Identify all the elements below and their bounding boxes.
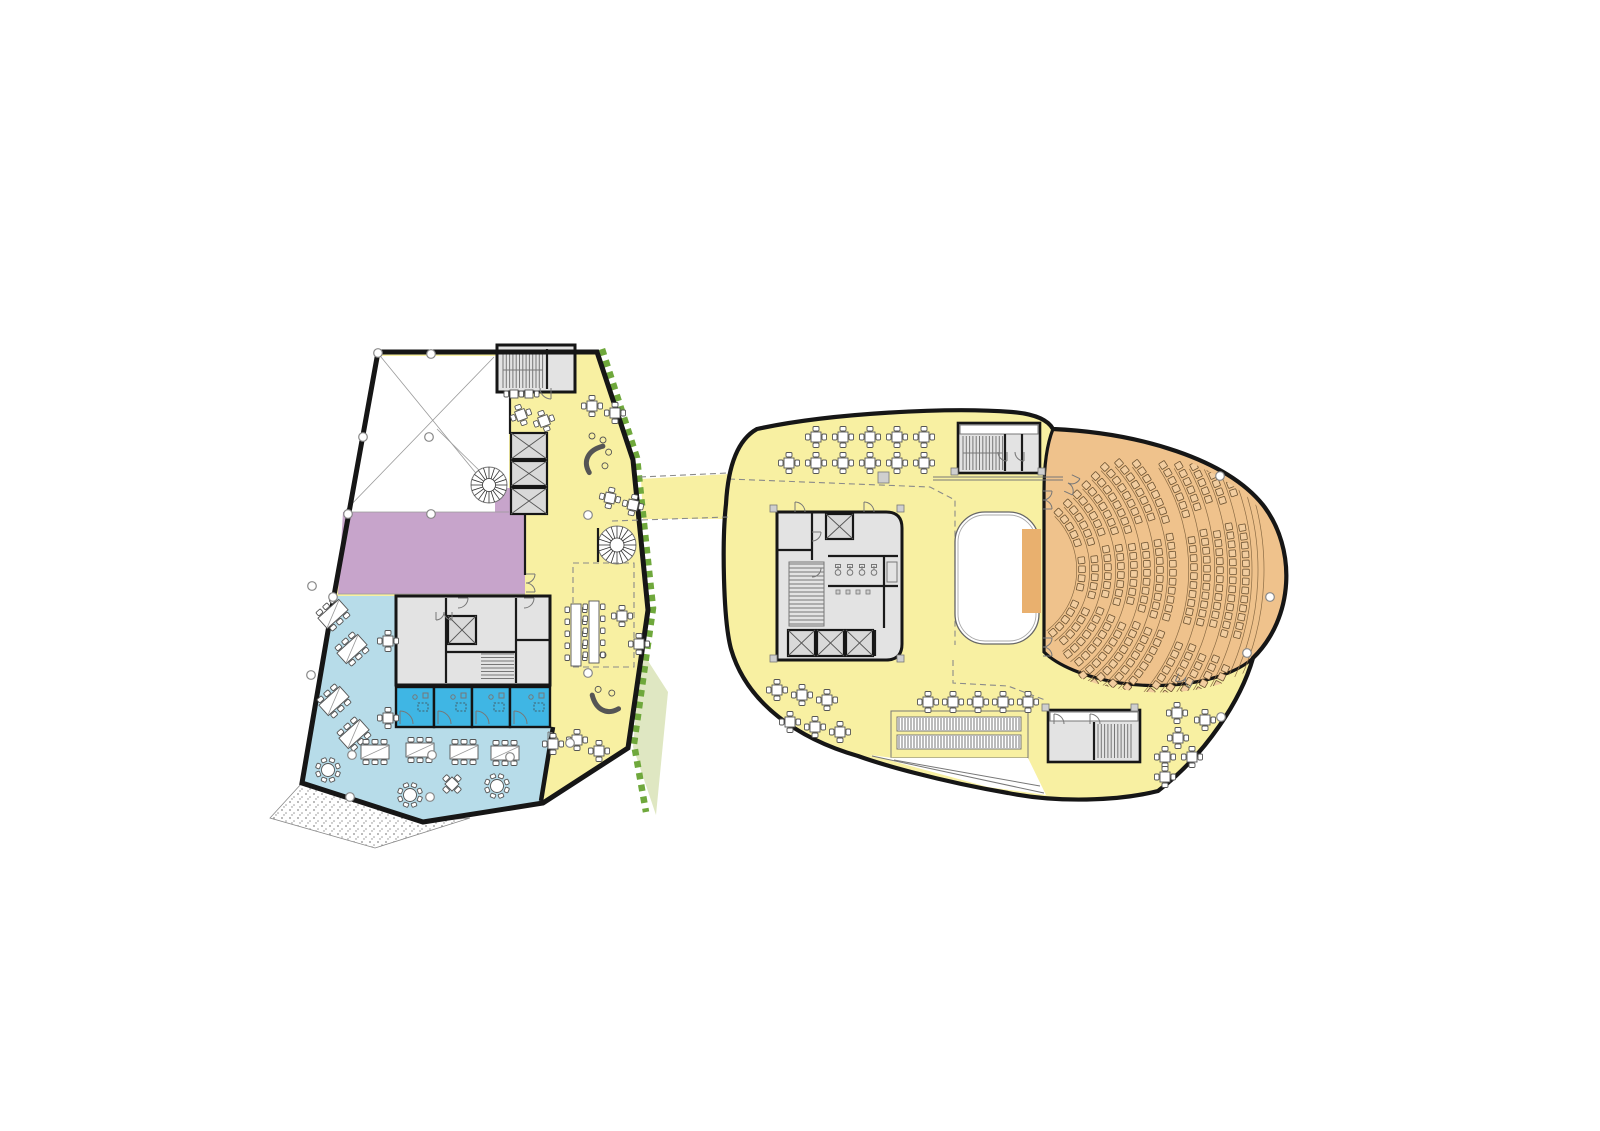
elevator-3	[511, 488, 547, 514]
right-building-auditorium	[724, 410, 1287, 799]
column-r4	[1217, 713, 1226, 722]
hall-purple	[338, 512, 525, 594]
core-main-elevator	[448, 616, 476, 644]
left-building	[302, 345, 650, 822]
column-r1	[1216, 472, 1225, 481]
booth-1	[396, 687, 434, 727]
bar-table-2	[519, 390, 539, 398]
column-12	[506, 753, 515, 762]
column-11	[428, 751, 437, 760]
threshold-w3	[770, 655, 777, 662]
column-17	[566, 739, 575, 748]
column-13	[346, 793, 355, 802]
column-9	[307, 671, 316, 680]
threshold-n2	[1038, 468, 1045, 475]
elevator-1	[511, 433, 547, 459]
column-15	[584, 511, 593, 520]
booth-3	[472, 687, 510, 727]
column-8	[308, 582, 317, 591]
sink-1	[836, 590, 840, 594]
post-square	[878, 472, 889, 483]
column-2	[427, 350, 436, 359]
escalator-treads-2	[899, 736, 1019, 748]
bridge-deck	[641, 474, 729, 519]
threshold-w1	[770, 505, 777, 512]
core-north-landing	[960, 425, 1038, 434]
floor-plan-drawing	[0, 0, 1600, 1131]
cw-elevator-1	[788, 630, 815, 656]
column-3	[359, 433, 368, 442]
floor-plan-page	[0, 0, 1600, 1131]
column-5	[344, 510, 353, 519]
column-7	[329, 593, 338, 602]
column-6	[427, 510, 436, 519]
threshold-s2	[1131, 704, 1138, 711]
column-r3	[1243, 649, 1252, 658]
cw-elevator-2	[817, 630, 844, 656]
work-table-8	[491, 741, 519, 766]
column-r2	[1266, 593, 1275, 602]
column-4	[425, 433, 434, 442]
elevator-2	[511, 461, 547, 486]
threshold-n1	[951, 468, 958, 475]
sink-2	[846, 590, 850, 594]
stage	[1022, 529, 1041, 613]
column-1	[374, 349, 383, 358]
escalator-treads-1	[899, 718, 1019, 730]
sink-3	[856, 590, 860, 594]
sink-4	[866, 590, 870, 594]
column-14	[426, 793, 435, 802]
column-16	[584, 669, 593, 678]
booth-2	[434, 687, 472, 727]
booth-4	[510, 687, 550, 727]
work-table-5	[361, 740, 389, 765]
spiral-stair-atrium	[471, 467, 507, 503]
cw-elevator-n	[826, 514, 853, 539]
cw-elevator-3	[846, 630, 873, 656]
threshold-s1	[1042, 704, 1049, 711]
spiral-stair-foyer	[598, 526, 636, 564]
work-table-7	[450, 740, 478, 765]
threshold-w4	[897, 655, 904, 662]
column-10	[348, 751, 357, 760]
threshold-w2	[897, 505, 904, 512]
